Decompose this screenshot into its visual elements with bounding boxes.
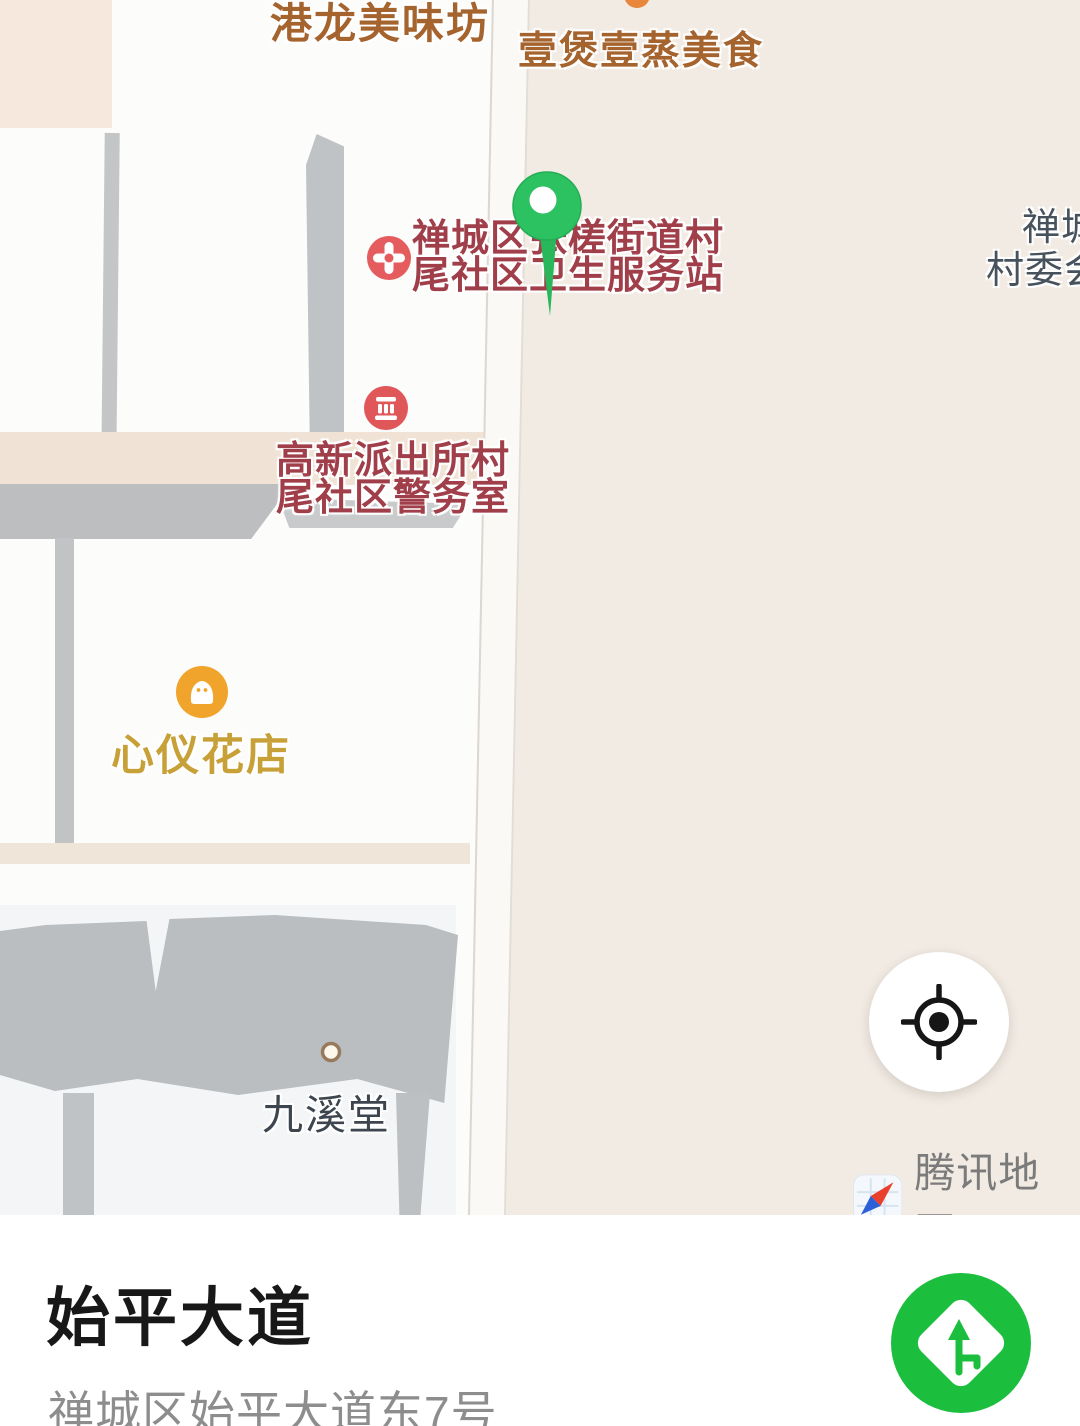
poi-label-restaurant-top[interactable]: 港龙美味坊 <box>270 0 490 51</box>
poi-label-line: 高新派出所村 <box>276 443 510 480</box>
cross-street-shadow <box>0 484 292 539</box>
locate-button[interactable] <box>869 952 1009 1092</box>
police-station-icon[interactable] <box>363 385 409 431</box>
building-shadow-edge <box>55 538 74 848</box>
location-title: 始平大道 <box>46 1267 314 1359</box>
locate-icon <box>901 984 977 1060</box>
location-address: 禅城区始平大道东7号 <box>48 1377 498 1426</box>
building-roof-shadow <box>0 903 458 1103</box>
building-column-shadow <box>63 1093 94 1215</box>
poi-label-flower-shop[interactable]: 心仪花店 <box>111 721 291 783</box>
poi-label-line: 尾社区警务室 <box>276 480 510 517</box>
hospital-icon[interactable] <box>366 235 412 281</box>
poi-label-police-room[interactable]: 高新派出所村 尾社区警务室 <box>276 443 510 517</box>
poi-label-village-committee-line2[interactable]: 村委会 <box>986 239 1080 294</box>
poi-label-restaurant-right[interactable]: 壹煲壹蒸美食 <box>518 20 764 76</box>
watermark-label: 腾讯地图 <box>914 1139 1080 1215</box>
building-shadow-edge <box>306 134 344 444</box>
map-canvas[interactable]: 港龙美味坊 壹煲壹蒸美食 禅城区张槎街道村 尾社区卫生服务站 高新派出所村 尾社… <box>0 0 1080 1215</box>
route-button[interactable] <box>891 1273 1031 1413</box>
shop-icon[interactable] <box>176 666 228 718</box>
poi-dot-partial <box>624 0 650 8</box>
tencent-maps-app: 港龙美味坊 壹煲壹蒸美食 禅城区张槎街道村 尾社区卫生服务站 高新派出所村 尾社… <box>0 0 1080 1426</box>
poi-label-hall[interactable]: 九溪堂 <box>262 1081 391 1141</box>
dot-marker-icon[interactable] <box>319 1040 343 1064</box>
location-panel: 始平大道 禅城区始平大道东7号 <box>0 1215 1080 1426</box>
building-block-topleft <box>0 0 112 128</box>
route-icon <box>891 1273 1031 1413</box>
map-watermark: 腾讯地图 <box>853 1139 1080 1215</box>
alley-gap <box>0 843 470 864</box>
selected-location-pin[interactable] <box>505 168 591 318</box>
tencent-maps-logo-icon <box>853 1174 902 1215</box>
